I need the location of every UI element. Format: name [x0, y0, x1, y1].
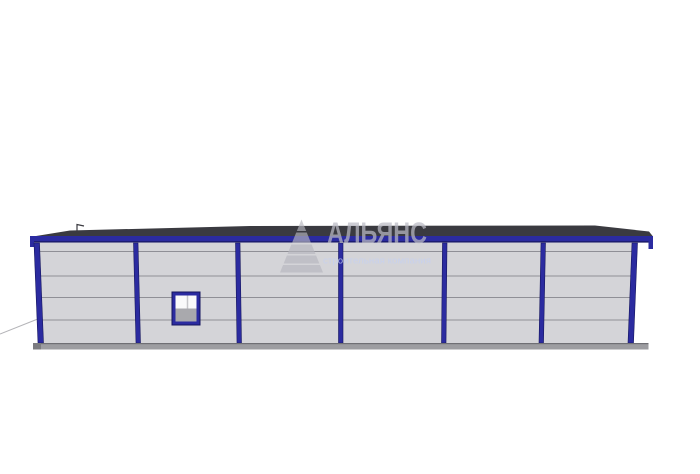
watermark-title: АЛЬЯНС	[327, 217, 427, 250]
fascia-right-endcap	[649, 236, 654, 249]
render-canvas: АЛЬЯНС строительная компания	[0, 0, 700, 474]
window	[172, 292, 200, 325]
base-plinth	[33, 343, 649, 350]
fascia-left-endcap	[30, 236, 34, 247]
watermark-subtitle: строительная компания	[323, 256, 431, 267]
window-lower-panel	[176, 309, 197, 322]
plinth-top-edge	[33, 343, 649, 344]
plinth-left-shadow	[33, 343, 41, 350]
building-elevation-drawing: АЛЬЯНС строительная компания	[0, 0, 700, 474]
column-5	[442, 243, 448, 343]
